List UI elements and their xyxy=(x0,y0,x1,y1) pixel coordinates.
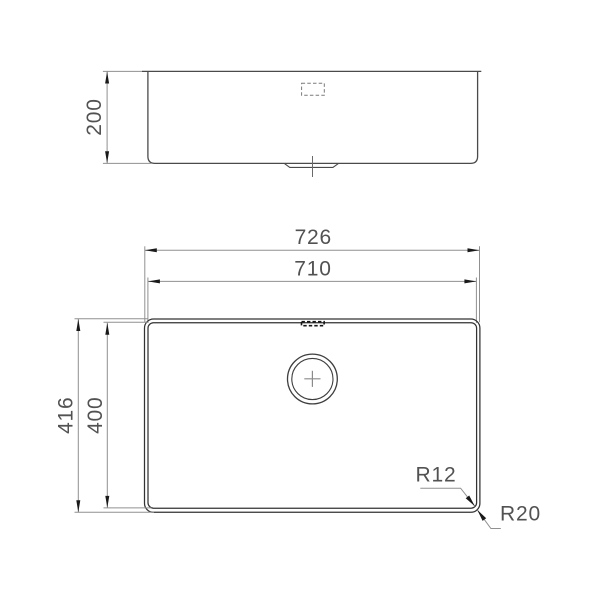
svg-text:R12: R12 xyxy=(416,464,457,487)
svg-text:R20: R20 xyxy=(500,503,541,526)
svg-text:416: 416 xyxy=(54,396,77,433)
svg-text:400: 400 xyxy=(84,396,107,433)
svg-text:710: 710 xyxy=(294,257,331,280)
svg-text:726: 726 xyxy=(295,226,332,249)
svg-text:200: 200 xyxy=(83,98,106,135)
